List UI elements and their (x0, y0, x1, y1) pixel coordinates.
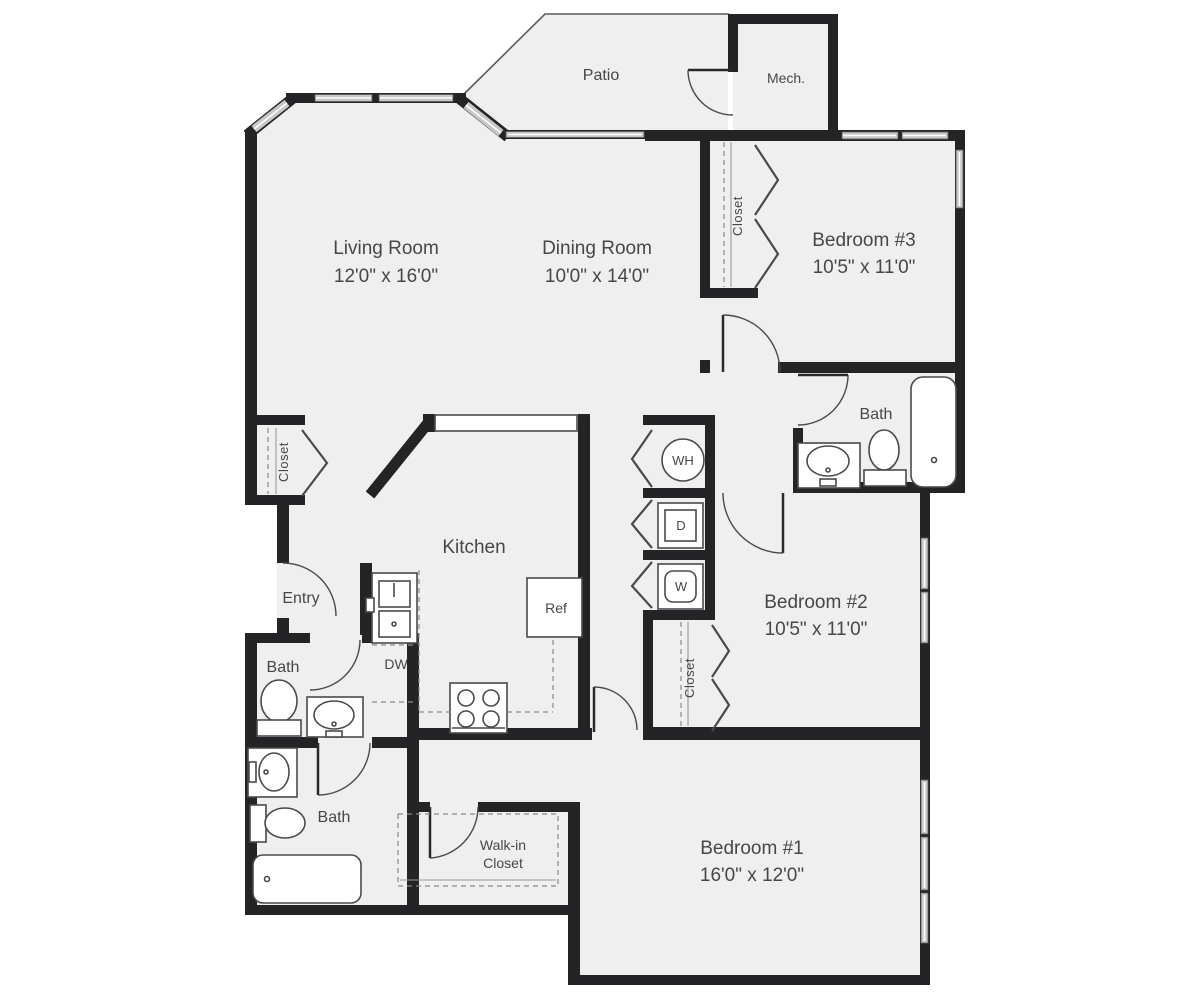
bedroom3-label: Bedroom #3 (812, 230, 916, 251)
pass-through-counter (435, 415, 577, 431)
floor-plan: Patio Mech. Living Room 12'0" x 16'0" Di… (0, 0, 1200, 999)
bedroom1-dims: 16'0" x 12'0" (700, 865, 804, 886)
kitchen-sink (366, 573, 417, 643)
washer-label: W (675, 579, 688, 594)
bath1-label: Bath (267, 659, 300, 676)
bath3-toilet-bowl (869, 430, 899, 470)
patio-slider-window (506, 132, 644, 138)
bedroom2-label: Bedroom #2 (764, 592, 868, 613)
bath1-toilet-bowl (261, 680, 297, 722)
bed2-closet-label: Closet (682, 658, 697, 698)
entry-label: Entry (282, 590, 319, 607)
wh-label: WH (672, 453, 694, 468)
living-room-dims: 12'0" x 16'0" (334, 266, 438, 287)
living-room-label: Living Room (333, 238, 439, 259)
dw-label: DW (384, 656, 408, 672)
bath2-toilet-tank (250, 805, 266, 842)
bath2-faucet (249, 762, 256, 782)
bath3-faucet (820, 479, 836, 486)
bath3-toilet-tank (864, 470, 906, 486)
bath3-tub (911, 377, 956, 487)
bedroom2-dims: 10'5" x 11'0" (765, 619, 868, 640)
dryer-label: D (676, 518, 685, 533)
bath2-label: Bath (318, 809, 351, 826)
bath1-toilet-tank (257, 720, 301, 736)
bath2-toilet-bowl (265, 808, 305, 838)
ref-label: Ref (545, 600, 567, 616)
bedroom3-top-windows (842, 132, 948, 139)
mech-label: Mech. (767, 70, 805, 86)
kitchen-label: Kitchen (442, 537, 505, 558)
dining-room-dims: 10'0" x 14'0" (545, 266, 649, 287)
bath1-faucet (326, 731, 342, 737)
entry-recess-outside (185, 505, 277, 633)
bath3-label: Bath (860, 406, 893, 423)
patio-label: Patio (583, 67, 620, 84)
walkin-closet-label-line1: Walk-in (480, 837, 526, 853)
stove (450, 683, 507, 733)
bedroom3-right-window (956, 150, 963, 208)
dining-room-label: Dining Room (542, 238, 652, 259)
bedroom1-right-windows (921, 780, 928, 943)
bedroom3-dims: 10'5" x 11'0" (813, 257, 916, 278)
bedroom1-label: Bedroom #1 (700, 838, 804, 859)
entry-closet-label: Closet (276, 442, 291, 482)
walkin-closet-label-line2: Closet (483, 855, 523, 871)
bed3-closet-label: Closet (730, 196, 745, 236)
bay-window-top (315, 95, 453, 102)
floor-plan-svg: Patio Mech. Living Room 12'0" x 16'0" Di… (0, 0, 1200, 999)
